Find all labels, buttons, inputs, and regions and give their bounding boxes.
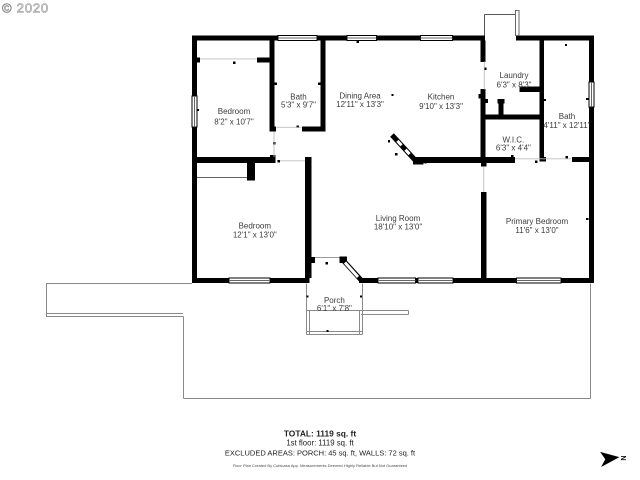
svg-text:8'2" x 10'7": 8'2" x 10'7"	[214, 117, 254, 126]
svg-text:12'1" x 13'0": 12'1" x 13'0"	[233, 230, 277, 239]
svg-text:6'1" x 7'8": 6'1" x 7'8"	[317, 304, 352, 313]
svg-text:Living Room: Living Room	[376, 214, 421, 223]
svg-text:11'6" x 13'0": 11'6" x 13'0"	[515, 226, 558, 235]
svg-text:TOTAL: 1119 sq. ft: TOTAL: 1119 sq. ft	[284, 429, 356, 439]
svg-text:4'11" x 12'11": 4'11" x 12'11"	[543, 121, 590, 130]
svg-text:Primary Bedroom: Primary Bedroom	[506, 217, 569, 226]
svg-text:Kitchen: Kitchen	[428, 93, 455, 102]
svg-text:6'3" x 8'3": 6'3" x 8'3"	[497, 80, 532, 89]
svg-text:© 2020: © 2020	[2, 0, 49, 15]
svg-text:9'10" x 13'3": 9'10" x 13'3"	[419, 102, 463, 111]
svg-text:Laundry: Laundry	[500, 71, 529, 80]
svg-text:12'11" x 13'3": 12'11" x 13'3"	[336, 100, 384, 109]
svg-text:18'10" x 13'0": 18'10" x 13'0"	[374, 223, 422, 232]
svg-text:EXCLUDED AREAS: PORCH: 45 sq.: EXCLUDED AREAS: PORCH: 45 sq. ft, WALLS:…	[225, 449, 416, 458]
svg-text:Bedroom: Bedroom	[218, 107, 251, 116]
svg-text:5'3" x 9'7": 5'3" x 9'7"	[281, 101, 316, 110]
svg-text:Bedroom: Bedroom	[239, 221, 272, 230]
svg-text:Floor Plan Created By Cubicasa: Floor Plan Created By Cubicasa App. Meas…	[233, 463, 408, 468]
svg-text:N: N	[619, 455, 626, 460]
svg-text:6'3" x 4'4": 6'3" x 4'4"	[496, 144, 531, 153]
svg-text:1st floor: 1119 sq. ft: 1st floor: 1119 sq. ft	[286, 438, 354, 447]
